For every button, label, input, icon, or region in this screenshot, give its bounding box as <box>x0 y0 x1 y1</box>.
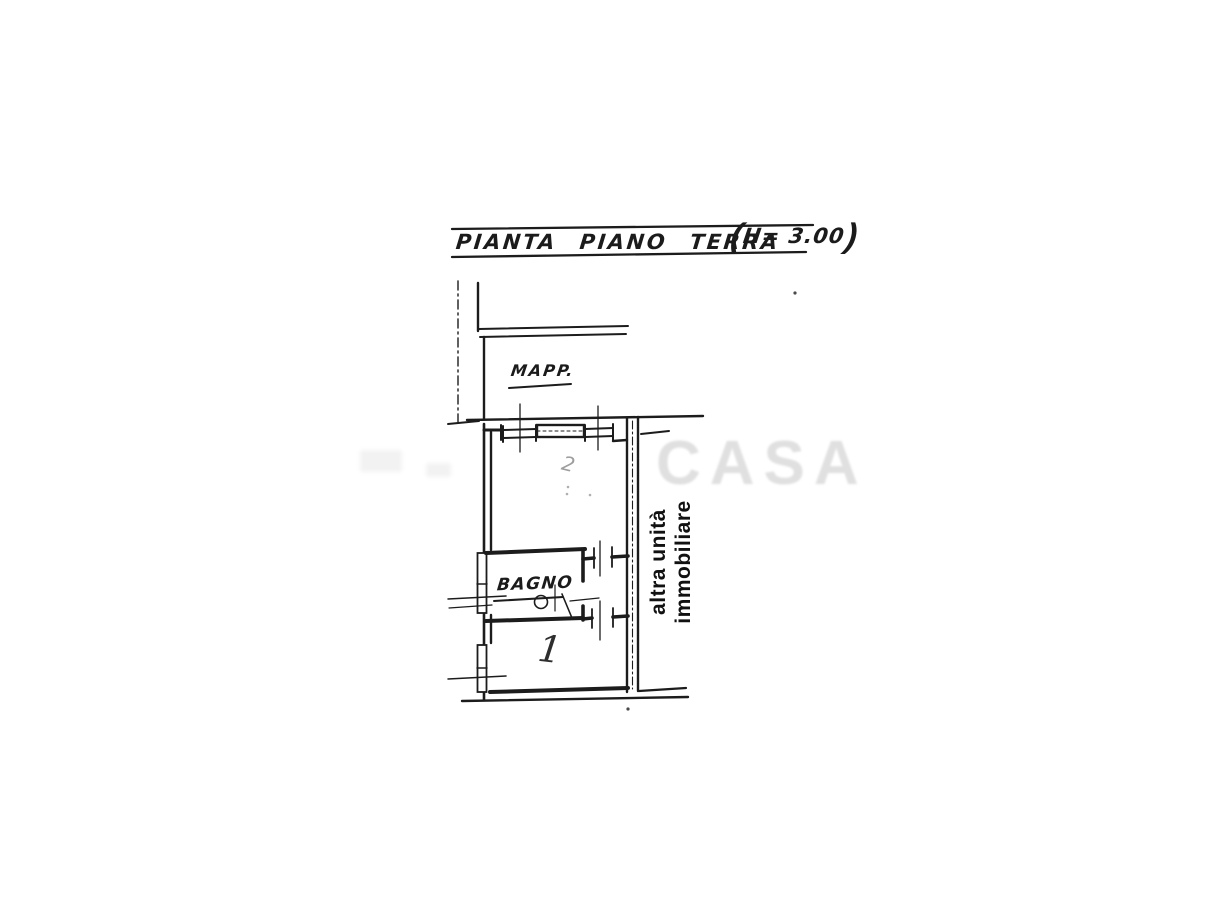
plan-top-wall <box>448 404 703 452</box>
top-window-left <box>503 404 536 452</box>
left-window-room1 <box>448 645 506 692</box>
bagno-underline <box>494 597 563 601</box>
top-window-right <box>585 406 613 450</box>
scanned-floorplan-page: CASA <box>0 0 1225 918</box>
bagno-room-label: BAGNO <box>496 573 574 596</box>
adjacent-unit-line2: immobiliare <box>671 492 696 632</box>
adjacent-unit-label: altra unità immobiliare <box>646 492 698 632</box>
exterior-wall-left <box>448 424 506 700</box>
mapp-underline <box>509 384 571 388</box>
plan-height-note: ( H= 3.00 ) <box>729 219 860 253</box>
floor-plan-drawing <box>0 0 1225 918</box>
top-window-center <box>537 425 584 437</box>
pencil-dots <box>566 486 592 497</box>
mapp-label: MAPP. <box>510 361 576 380</box>
adjacent-unit-line1: altra unità <box>646 492 671 632</box>
height-note-value: H= 3.00 <box>742 224 847 248</box>
neighbor-building-outline <box>458 281 628 425</box>
